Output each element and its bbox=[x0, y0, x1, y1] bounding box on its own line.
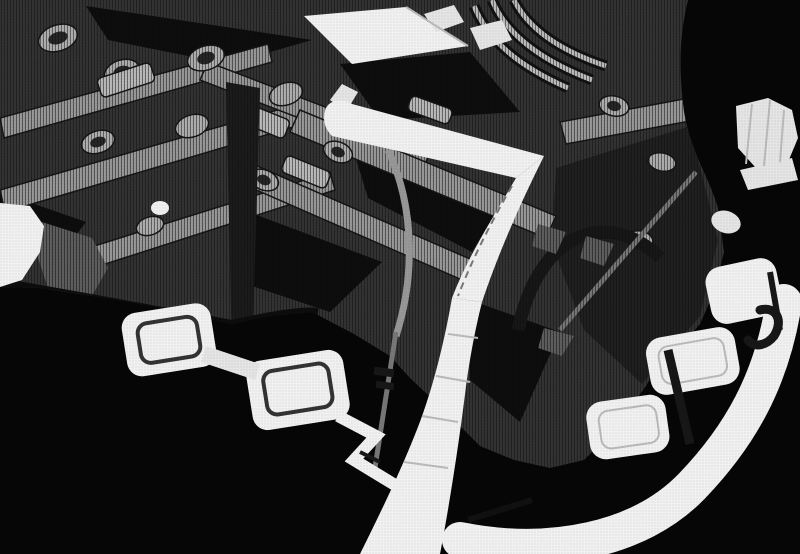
cad-figure bbox=[0, 0, 800, 554]
grain-overlay bbox=[0, 0, 800, 554]
cad-render-canvas bbox=[0, 0, 800, 554]
